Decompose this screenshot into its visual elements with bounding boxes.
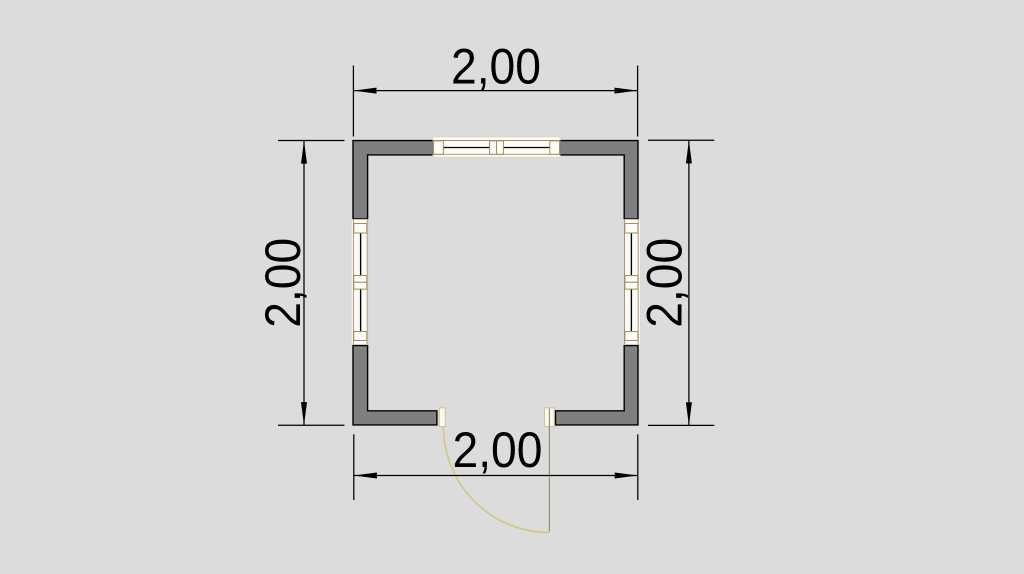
- svg-text:2,00: 2,00: [453, 421, 543, 478]
- svg-text:2,00: 2,00: [254, 238, 311, 328]
- svg-text:2,00: 2,00: [451, 37, 541, 94]
- svg-text:2,00: 2,00: [636, 238, 693, 328]
